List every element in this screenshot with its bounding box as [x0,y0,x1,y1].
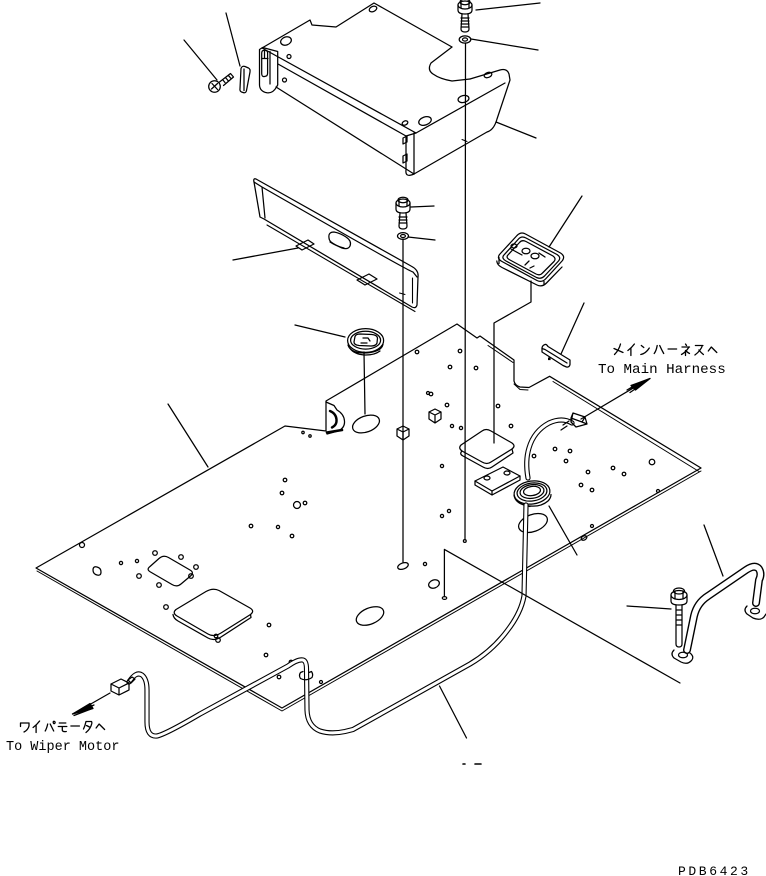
svg-text:To Wiper Motor: To Wiper Motor [6,740,119,755]
svg-text:To Main Harness: To Main Harness [598,362,726,378]
svg-text:PDB6423: PDB6423 [678,864,751,876]
